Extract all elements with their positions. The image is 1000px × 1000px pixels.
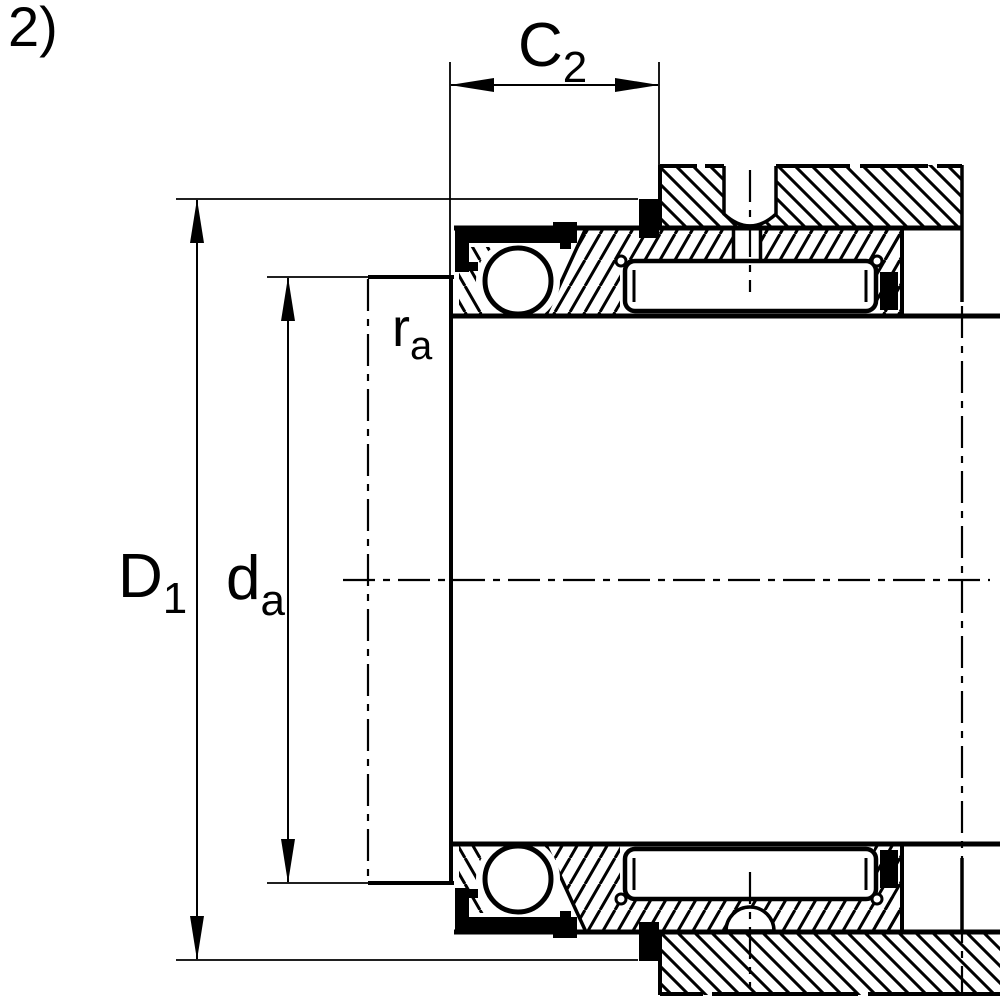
seal-block-bottom-center xyxy=(639,922,659,961)
seal-cap-bottom-foot xyxy=(465,889,478,898)
seal-block-top-right xyxy=(880,272,898,310)
figure-marker-label: 2) xyxy=(8,0,58,58)
cage-pin-top-right xyxy=(872,256,882,266)
seal-cap-top-foot xyxy=(465,262,478,271)
seal-block-top-center xyxy=(639,199,659,238)
technical-drawing: 2) C2 D1 da ra xyxy=(0,0,1000,1000)
lube-hole-slot xyxy=(734,227,761,263)
ball-top xyxy=(485,248,551,314)
seal-cap-bottom-step xyxy=(553,917,577,938)
housing-bottom-hatch xyxy=(660,932,1000,995)
bearing-section-canvas: 2) C2 D1 da ra xyxy=(0,0,1000,1000)
seal-cap-bottom-notch xyxy=(560,911,571,919)
seal-block-bottom-right xyxy=(880,850,898,888)
cage-pin-bottom-left xyxy=(616,894,626,904)
housing-top-hatch xyxy=(660,165,962,228)
seal-cap-top-step xyxy=(553,222,577,243)
cage-pin-top-left xyxy=(616,256,626,266)
ball-bottom xyxy=(485,846,551,912)
cage-pin-bottom-right xyxy=(872,894,882,904)
seal-cap-top-notch xyxy=(560,241,571,249)
